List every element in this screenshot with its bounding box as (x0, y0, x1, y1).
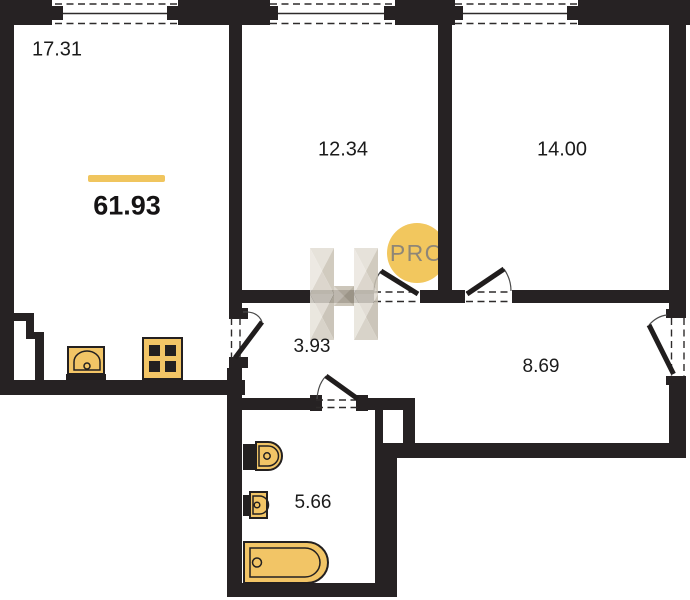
bathroom-sink-icon (243, 492, 269, 518)
fixtures (66, 338, 328, 583)
h-watermark-logo (310, 248, 378, 340)
stove-icon (143, 338, 182, 379)
kitchen-sink-icon (66, 347, 106, 380)
window-1 (52, 4, 178, 24)
pro-badge-label: PRO (390, 240, 444, 266)
door-room-3 (466, 269, 511, 302)
windows (52, 4, 578, 24)
toilet-icon (243, 442, 282, 470)
doors (232, 269, 685, 408)
entrance-door (649, 315, 684, 376)
bathtub-icon (244, 542, 328, 583)
window-3 (452, 4, 578, 24)
door-bathroom (316, 376, 359, 408)
floor-plan: PRO (0, 0, 690, 600)
floor-plan-drawing: PRO (0, 0, 690, 600)
window-2 (267, 4, 395, 24)
